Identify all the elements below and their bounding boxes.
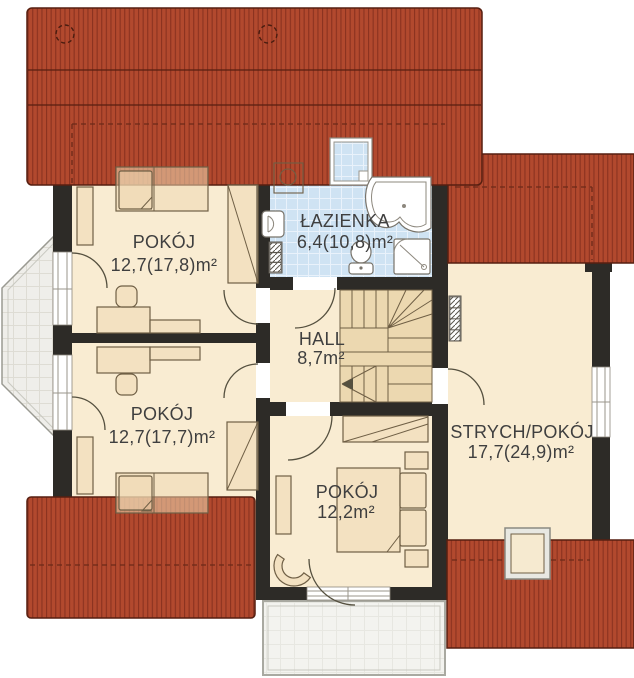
window bbox=[53, 252, 72, 325]
chair bbox=[116, 374, 137, 395]
room-area: 12,2m² bbox=[317, 502, 375, 522]
room-name: HALL bbox=[299, 329, 345, 349]
wardrobe bbox=[77, 437, 93, 494]
nightstand bbox=[405, 550, 428, 567]
balcony bbox=[263, 601, 445, 675]
wall bbox=[53, 430, 72, 497]
sink-icon bbox=[262, 211, 284, 237]
pillow bbox=[400, 510, 426, 546]
window bbox=[53, 355, 72, 430]
wall bbox=[256, 587, 307, 600]
shower-icon bbox=[330, 138, 372, 185]
chair bbox=[116, 286, 137, 307]
door-opening bbox=[293, 277, 337, 290]
floor-attic-room bbox=[448, 263, 610, 540]
room-area: 17,7(24,9)m² bbox=[468, 442, 575, 462]
desk bbox=[97, 307, 150, 333]
room-area: 12,7(17,8)m² bbox=[111, 255, 218, 275]
roof-bottom-left bbox=[27, 497, 255, 618]
wall bbox=[432, 404, 448, 600]
door-opening bbox=[256, 363, 270, 398]
skylight bbox=[505, 528, 550, 579]
bay-window bbox=[2, 233, 57, 439]
radiator-icon bbox=[269, 242, 282, 273]
shelf bbox=[276, 476, 291, 534]
wardrobe bbox=[77, 187, 93, 245]
wall bbox=[53, 333, 256, 343]
staircase bbox=[340, 290, 432, 402]
wall bbox=[390, 587, 448, 600]
floor-plan-drawing: POKÓJ 12,7(17,8)m² ŁAZIENKA 6,4(10,8)m² … bbox=[0, 0, 634, 678]
window bbox=[592, 367, 610, 437]
wall bbox=[330, 402, 432, 416]
room-name: POKÓJ bbox=[133, 231, 196, 252]
wall bbox=[337, 277, 432, 290]
desk bbox=[97, 347, 150, 373]
wall bbox=[592, 263, 610, 367]
door-opening bbox=[432, 368, 448, 404]
nightstand bbox=[405, 452, 428, 469]
desk-return bbox=[150, 320, 200, 333]
wall bbox=[256, 323, 270, 363]
roof-top bbox=[27, 8, 482, 185]
desk-return bbox=[150, 347, 200, 360]
room-name: POKÓJ bbox=[316, 481, 379, 502]
room-name: STRYCH/POKÓJ bbox=[450, 421, 593, 442]
radiator-icon bbox=[449, 296, 461, 341]
wall bbox=[53, 185, 72, 252]
wall bbox=[256, 402, 286, 416]
wall bbox=[592, 437, 610, 540]
room-name: POKÓJ bbox=[131, 403, 194, 424]
pillow bbox=[119, 171, 152, 209]
room-area: 12,7(17,7)m² bbox=[109, 427, 216, 447]
shower-tray-icon bbox=[394, 239, 430, 274]
door-opening bbox=[286, 402, 330, 416]
room-area: 6,4(10,8)m² bbox=[297, 232, 393, 252]
room-area: 8,7m² bbox=[297, 348, 345, 368]
pillow bbox=[400, 473, 426, 508]
floor-plan: POKÓJ 12,7(17,8)m² ŁAZIENKA 6,4(10,8)m² … bbox=[0, 0, 634, 678]
door-opening bbox=[256, 288, 270, 323]
room-name: ŁAZIENKA bbox=[300, 211, 389, 231]
wall bbox=[432, 185, 448, 368]
